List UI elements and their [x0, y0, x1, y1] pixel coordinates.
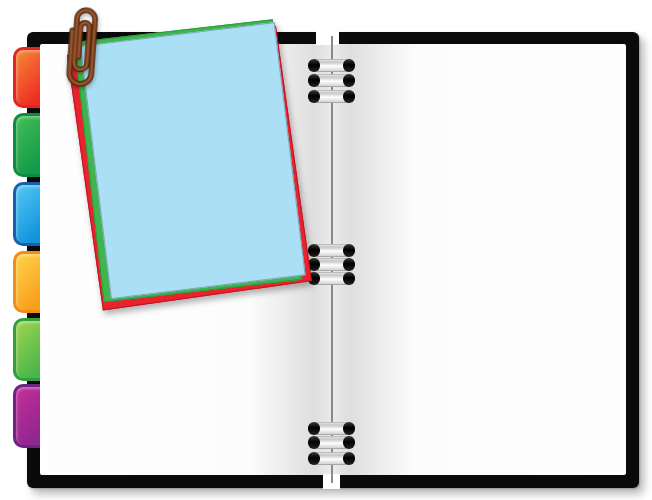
notebook-illustration — [0, 0, 652, 500]
paperclip-icon — [55, 0, 108, 98]
binder-ring — [308, 244, 355, 257]
paper-note-blue — [80, 22, 306, 299]
notebook-page-right — [332, 44, 626, 475]
binder-ring — [308, 90, 355, 103]
binder-ring — [308, 258, 355, 271]
binder-ring — [308, 74, 355, 87]
binder-ring — [308, 452, 355, 465]
binder-ring — [308, 272, 355, 285]
spine-gap-top — [316, 31, 339, 45]
binder-ring — [308, 422, 355, 435]
binder-ring — [308, 436, 355, 449]
binder-ring — [308, 59, 355, 72]
